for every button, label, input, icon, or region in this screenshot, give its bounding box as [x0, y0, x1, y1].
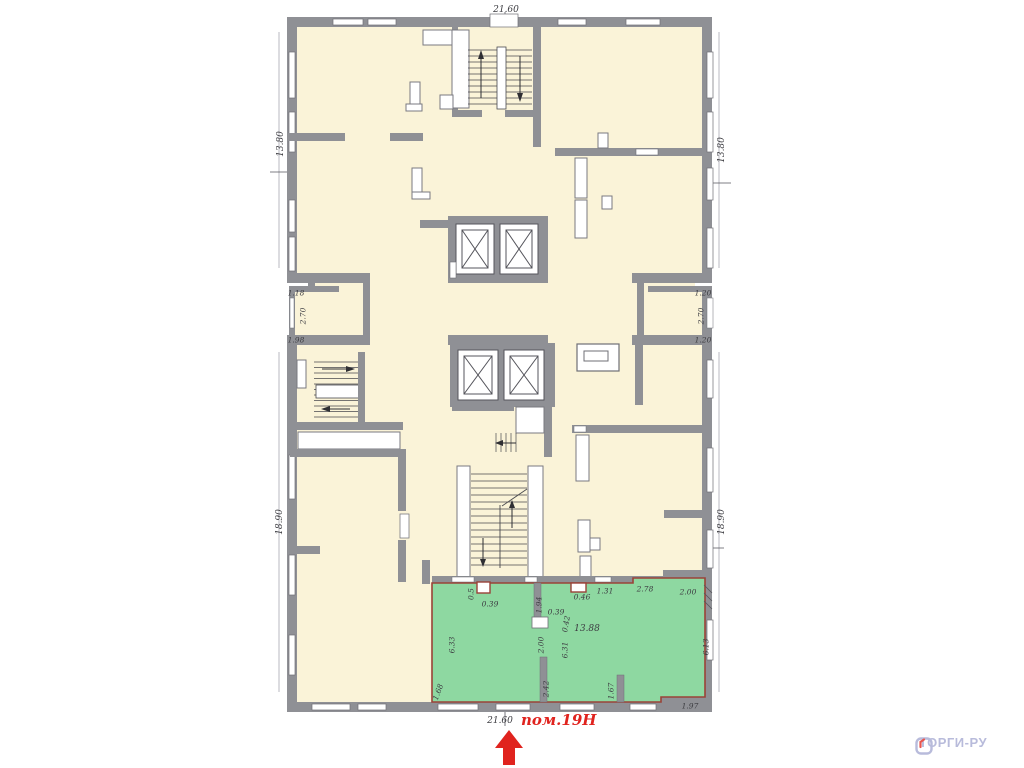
- green-room: [432, 578, 712, 702]
- left-balcony: [289, 286, 339, 342]
- room-label: пом.19Н: [521, 711, 596, 729]
- floor-plan-drawing: [0, 0, 1024, 768]
- vent-shaft: [577, 344, 619, 371]
- right-balcony: [648, 286, 713, 342]
- watermark: ТОРГИ-РУ: [914, 735, 987, 750]
- location-arrow-icon: [495, 730, 523, 765]
- room-19n-outline: [432, 578, 705, 702]
- floor-plan-canvas: 21.6013.8013.801.182.701.981.202.701.201…: [0, 0, 1024, 768]
- top-elevators: [448, 216, 548, 282]
- top-block: [287, 14, 713, 283]
